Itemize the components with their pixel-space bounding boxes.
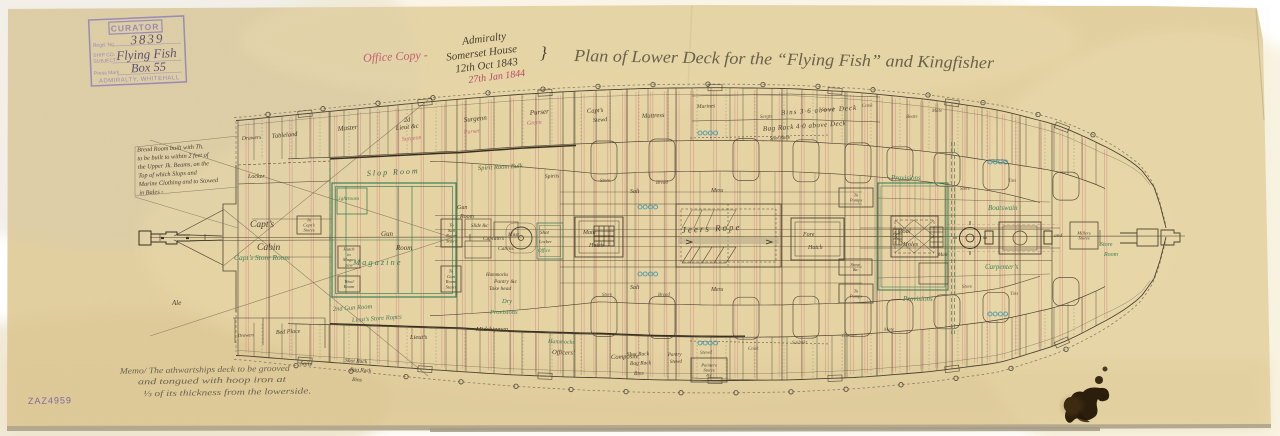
svg-text:Spirits: Spirits (545, 173, 560, 180)
svg-text:Holes: Holes (902, 241, 919, 248)
svg-text:Tins: Tins (1010, 292, 1019, 297)
svg-text:Green: Green (527, 120, 542, 127)
svg-text:and: and (1054, 233, 1063, 239)
svg-text:Press Mark: Press Mark (94, 70, 120, 77)
svg-text:Office: Office (538, 249, 551, 254)
svg-text:Room: Room (395, 244, 412, 252)
svg-text:Stores: Stores (303, 228, 315, 233)
svg-text:Stores: Stores (1078, 236, 1090, 241)
svg-text:Hatch: Hatch (807, 245, 823, 251)
svg-text:Carpenter’s: Carpenter’s (985, 263, 1018, 271)
svg-text:Officers’: Officers’ (552, 349, 575, 357)
svg-text:Lieut’s: Lieut’s (409, 334, 428, 341)
svg-text:Mess: Mess (710, 188, 724, 194)
svg-text:Store: Store (1100, 242, 1113, 248)
svg-text:Hammocks: Hammocks (547, 339, 576, 346)
svg-text:Store: Store (960, 187, 971, 192)
svg-text:Shot Rack: Shot Rack (345, 358, 368, 365)
svg-text:Bread: Bread (656, 181, 669, 186)
svg-text:Mattress: Mattress (641, 112, 665, 120)
svg-text:Sailmkr: Sailmkr (792, 340, 808, 346)
svg-text:Pantry &c: Pantry &c (493, 279, 518, 285)
svg-text:Stewd: Stewd (822, 108, 835, 113)
svg-text:Composite: Composite (611, 353, 639, 361)
svg-text:&c: &c (853, 267, 859, 272)
svg-text:Store: Store (602, 293, 613, 298)
svg-text:Cabin: Cabin (257, 243, 280, 253)
svg-text:SUBJECT: SUBJECT (93, 58, 116, 65)
svg-text:Pumps: Pumps (849, 294, 863, 299)
svg-text:Stewd: Stewd (593, 117, 609, 124)
svg-text:Capt’s: Capt’s (587, 107, 604, 115)
svg-text:Take head: Take head (489, 286, 512, 292)
svg-text:Capt’s Store Room: Capt’s Store Room (234, 253, 290, 262)
svg-text:Store: Store (962, 285, 973, 290)
svg-text:&c: &c (706, 373, 712, 378)
svg-text:Bread: Bread (658, 293, 671, 298)
svg-text:Drawers: Drawers (237, 332, 255, 338)
svg-text:Main: Main (582, 230, 596, 236)
svg-text:Pumps: Pumps (849, 198, 863, 203)
svg-text:Regd. No.: Regd. No. (93, 42, 116, 49)
svg-text:Boatswain: Boatswain (988, 204, 1018, 212)
svg-text:Cook: Cook (862, 104, 874, 109)
svg-text:Bins: Bins (352, 377, 362, 384)
svg-text:Ale: Ale (171, 299, 181, 307)
svg-text:Store: Store (600, 179, 611, 184)
svg-text:Mate: Mate (931, 109, 943, 114)
svg-text:Pantry: Pantry (667, 352, 683, 358)
svg-text:Stewd: Stewd (670, 360, 683, 365)
svg-text:Boats: Boats (906, 115, 918, 120)
svg-text:Room: Room (1103, 252, 1119, 258)
svg-text:Midshipmen: Midshipmen (475, 326, 508, 333)
svg-text:Mast: Mast (507, 232, 519, 238)
svg-text:Gunner: Gunner (842, 333, 857, 339)
svg-text:Provisions: Provisions (890, 174, 921, 182)
svg-text:Magazine: Magazine (352, 257, 403, 267)
svg-text:Sails: Sails (300, 361, 313, 368)
svg-text:Fore: Fore (802, 232, 815, 238)
svg-text:Provisions: Provisions (489, 309, 518, 316)
svg-text:Lightroom: Lightroom (335, 196, 359, 202)
svg-text:Dry: Dry (501, 298, 512, 305)
svg-text:Locker: Locker (538, 239, 552, 244)
svg-text:Stewd: Stewd (700, 351, 713, 356)
svg-text:Bag Rack: Bag Rack (630, 360, 652, 367)
svg-text:Bins: Bins (634, 371, 644, 377)
svg-text:Main: Main (937, 253, 949, 258)
svg-text:Gun: Gun (457, 205, 467, 211)
svg-text:Shot: Shot (540, 231, 550, 236)
svg-text:Locker: Locker (247, 174, 265, 180)
svg-text:Cabins: Cabins (498, 246, 514, 252)
svg-text:Room: Room (343, 284, 355, 289)
svg-text:Bag Rack: Bag Rack (350, 367, 372, 374)
svg-text:Hammocks: Hammocks (485, 273, 508, 278)
svg-text:Stairs: Stairs (446, 238, 457, 243)
svg-text:ZAZ4959: ZAZ4959 (28, 395, 72, 406)
svg-text:zine: zine (344, 262, 352, 267)
svg-text:Mess: Mess (710, 287, 724, 293)
svg-text:Salt: Salt (630, 285, 640, 291)
svg-text:Capt’s: Capt’s (250, 220, 274, 230)
svg-text:Provisions: Provisions (902, 295, 933, 303)
svg-text:Sergts: Sergts (760, 115, 773, 120)
svg-text:Tins: Tins (1008, 179, 1017, 184)
svg-text:Marines: Marines (696, 103, 716, 110)
svg-text:Hatch: Hatch (588, 243, 604, 249)
svg-text:Stairs: Stairs (446, 284, 457, 289)
svg-text:Slide &c: Slide &c (471, 224, 489, 229)
svg-text:Box 55: Box 55 (131, 60, 167, 76)
svg-text:Coal: Coal (898, 228, 911, 235)
svg-text:Mate: Mate (883, 328, 895, 333)
svg-text:Cook: Cook (748, 347, 760, 352)
svg-text:Salt: Salt (630, 189, 640, 195)
svg-text:}: } (540, 43, 547, 62)
svg-text:Gun: Gun (381, 230, 394, 238)
